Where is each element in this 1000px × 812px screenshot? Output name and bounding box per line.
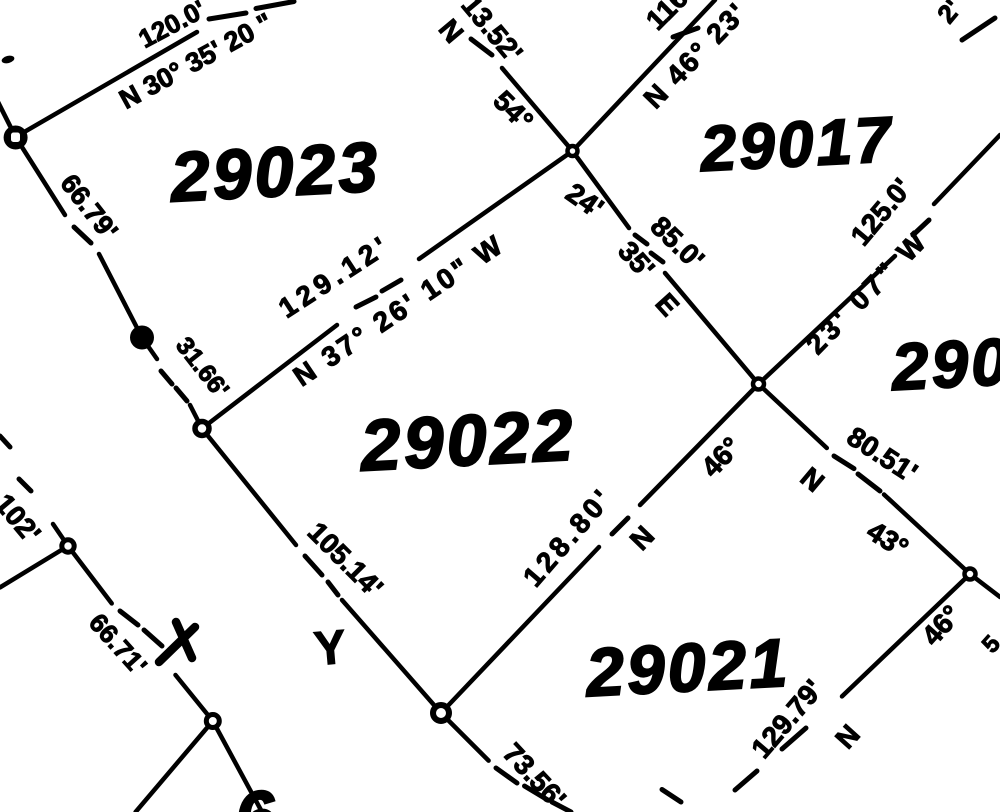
svg-text:29023: 29023 bbox=[167, 128, 382, 217]
svg-text:29022: 29022 bbox=[356, 395, 577, 486]
svg-text:2901: 2901 bbox=[888, 322, 1000, 404]
svg-text:Y: Y bbox=[312, 621, 349, 677]
svg-text:29021: 29021 bbox=[582, 625, 792, 712]
svg-text:29017: 29017 bbox=[698, 103, 896, 185]
